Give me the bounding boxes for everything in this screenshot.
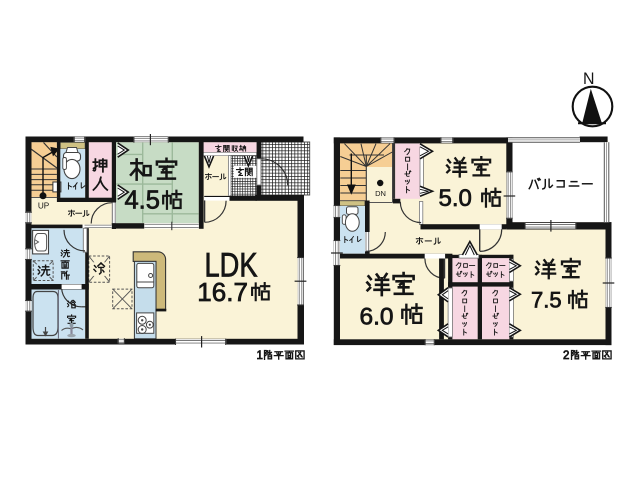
svg-text:5.0: 5.0 <box>439 185 472 212</box>
svg-text:DN: DN <box>375 189 386 198</box>
svg-text:1: 1 <box>257 350 263 362</box>
svg-text:4.5: 4.5 <box>125 187 160 215</box>
svg-text:6.0: 6.0 <box>360 304 394 331</box>
svg-text:2: 2 <box>563 350 569 362</box>
svg-text:N: N <box>583 70 595 88</box>
svg-text:16.7: 16.7 <box>197 277 248 307</box>
svg-text:UP: UP <box>38 202 50 211</box>
svg-text:7.5: 7.5 <box>531 288 562 313</box>
